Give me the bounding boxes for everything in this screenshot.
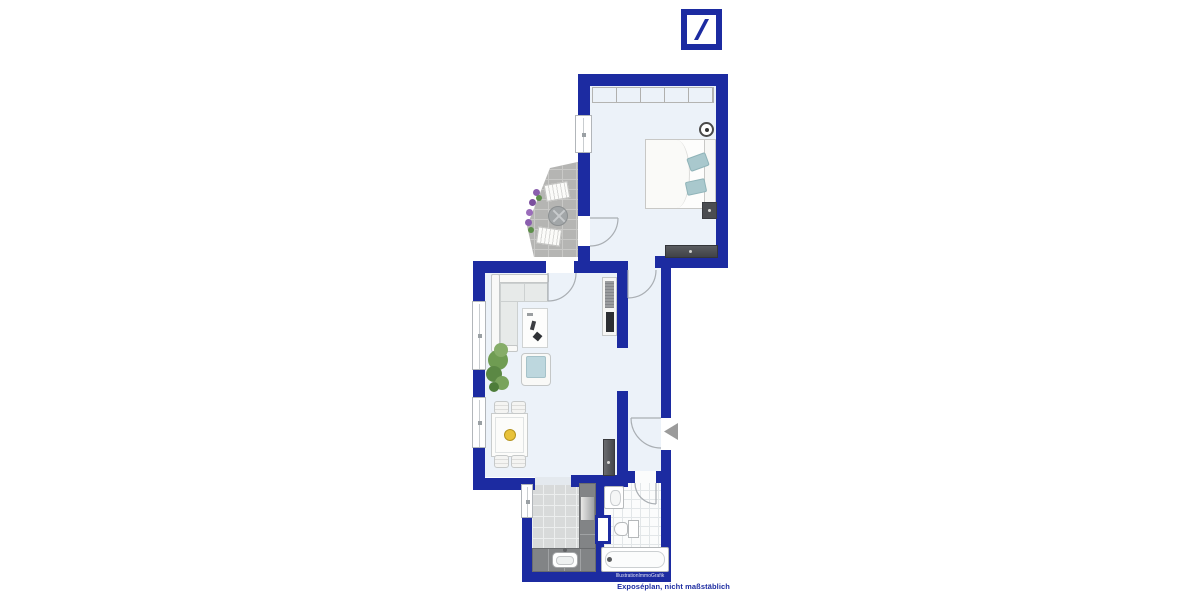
wall-bedroom-top bbox=[578, 74, 728, 86]
table-deco bbox=[533, 332, 543, 342]
tv-screen bbox=[606, 312, 614, 332]
dresser-knob bbox=[689, 250, 692, 253]
wall-living-left-a bbox=[473, 261, 485, 303]
wall-kitchen-left-b bbox=[522, 516, 532, 572]
kitchen-window bbox=[521, 484, 533, 518]
sink-basin bbox=[556, 556, 574, 565]
wall-hall-right-a bbox=[661, 261, 671, 418]
wall-kitchen-bath-a bbox=[596, 483, 604, 517]
kitchen-threshold bbox=[535, 477, 571, 485]
dining-chair-2 bbox=[511, 401, 526, 414]
tall-cabinet bbox=[603, 439, 615, 476]
living-window-2 bbox=[472, 397, 486, 448]
plan-watermark: IllustrationImmoGrafik bbox=[609, 572, 671, 580]
balcony-chair-2 bbox=[536, 226, 562, 246]
tv-board bbox=[602, 277, 617, 336]
kitchen-sink bbox=[552, 552, 578, 568]
sink-faucet bbox=[563, 548, 567, 552]
cabinet-knob bbox=[607, 461, 610, 464]
wall-bath-top-b bbox=[656, 471, 671, 483]
table-tray bbox=[527, 313, 533, 316]
balcony-table bbox=[548, 206, 568, 226]
bathtub bbox=[601, 547, 669, 572]
flower-green-1 bbox=[536, 195, 542, 201]
basin-bowl bbox=[610, 490, 621, 506]
bed-headboard bbox=[704, 139, 716, 209]
plant-2 bbox=[494, 343, 508, 357]
footer-disclaimer: Exposéplan, nicht maßstäblich bbox=[560, 582, 730, 591]
wall-bath-top-a bbox=[617, 471, 635, 483]
nightstand-knob bbox=[708, 209, 711, 212]
flower-box-3 bbox=[526, 209, 533, 216]
wall-bedroom-left-b bbox=[578, 152, 590, 216]
living-hall-passage bbox=[617, 348, 628, 391]
kitchen-oven bbox=[580, 496, 595, 521]
remote-control bbox=[530, 321, 536, 331]
bed-duvet bbox=[646, 140, 690, 208]
flower-box-4 bbox=[525, 219, 532, 226]
bedside-lamp-dot bbox=[705, 128, 709, 132]
wall-living-left-b bbox=[473, 368, 485, 399]
balcony-door-gap bbox=[578, 216, 590, 246]
bedroom-window bbox=[575, 115, 592, 153]
bathtub-inner bbox=[605, 551, 665, 568]
tv-board-shelf bbox=[605, 281, 614, 308]
dining-chair-1 bbox=[494, 401, 509, 414]
flower-green-2 bbox=[528, 227, 534, 233]
deutsche-bank-logo bbox=[681, 9, 722, 50]
deutsche-bank-logo-svg bbox=[681, 9, 722, 50]
fruit-bowl bbox=[504, 429, 516, 441]
dining-chair-3 bbox=[494, 455, 509, 468]
sofa-seat-left bbox=[500, 301, 518, 346]
flower-box-2 bbox=[529, 199, 536, 206]
bedroom-door-gap bbox=[628, 258, 655, 273]
washbasin bbox=[604, 486, 624, 509]
wall-living-hall-a bbox=[617, 261, 628, 348]
bathroom-door-gap bbox=[635, 471, 656, 483]
floor-plan-page: IllustrationImmoGrafik Exposéplan, nicht… bbox=[0, 0, 1200, 600]
dining-chair-4 bbox=[511, 455, 526, 468]
sofa-seat-top bbox=[500, 283, 548, 302]
entrance-door-gap bbox=[661, 418, 671, 450]
sofa-seam bbox=[524, 284, 525, 302]
armchair-seat bbox=[526, 356, 546, 378]
coffee-table bbox=[522, 308, 548, 348]
toilet-bowl bbox=[614, 522, 628, 536]
wall-bedroom-left-a bbox=[578, 74, 590, 118]
terrace-door-gap bbox=[546, 261, 574, 273]
wall-bedroom-right bbox=[716, 74, 728, 268]
bathtub-faucet bbox=[607, 557, 612, 562]
plant-5 bbox=[489, 382, 499, 392]
hallway-floor bbox=[628, 268, 661, 471]
living-window-1 bbox=[472, 301, 486, 370]
toilet-tank bbox=[628, 520, 639, 538]
armchair bbox=[521, 353, 551, 386]
dining-table bbox=[491, 413, 528, 457]
bath-pass-door bbox=[595, 515, 611, 544]
wardrobe bbox=[592, 87, 714, 103]
sofa-arm-left bbox=[491, 274, 500, 352]
